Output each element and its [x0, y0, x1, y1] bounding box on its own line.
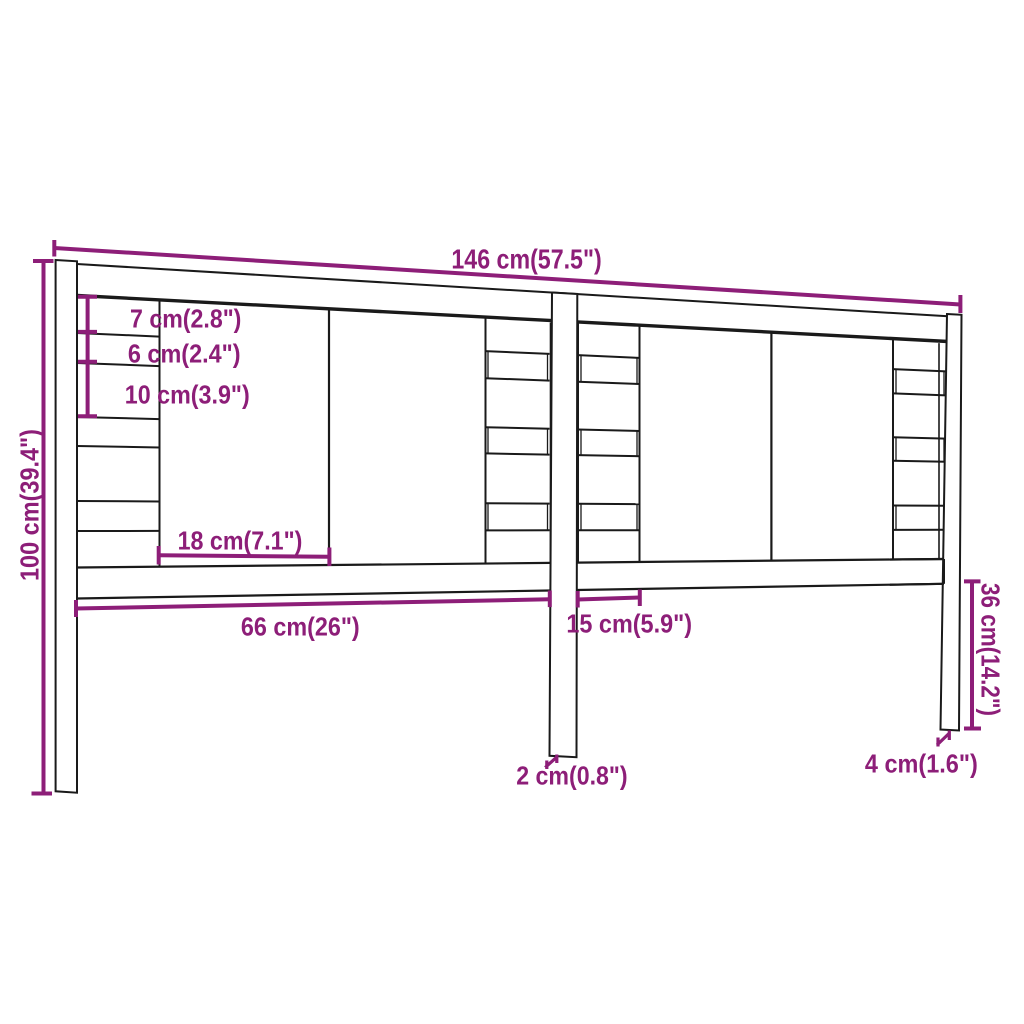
svg-text:18 cm(7.1"): 18 cm(7.1") [178, 526, 303, 556]
svg-text:4 cm(1.6"): 4 cm(1.6") [865, 749, 978, 779]
svg-text:7 cm(2.8"): 7 cm(2.8") [130, 303, 241, 333]
svg-text:66 cm(26"): 66 cm(26") [241, 612, 360, 642]
svg-text:2 cm(0.8"): 2 cm(0.8") [516, 761, 627, 791]
svg-text:15 cm(5.9"): 15 cm(5.9") [566, 609, 692, 639]
svg-text:146 cm(57.5"): 146 cm(57.5") [451, 244, 601, 275]
svg-text:6 cm(2.4"): 6 cm(2.4") [128, 339, 241, 369]
svg-text:10 cm(3.9"): 10 cm(3.9") [125, 380, 250, 410]
svg-text:36 cm(14.2"): 36 cm(14.2") [976, 583, 1006, 716]
svg-text:100 cm(39.4"): 100 cm(39.4") [15, 429, 45, 581]
